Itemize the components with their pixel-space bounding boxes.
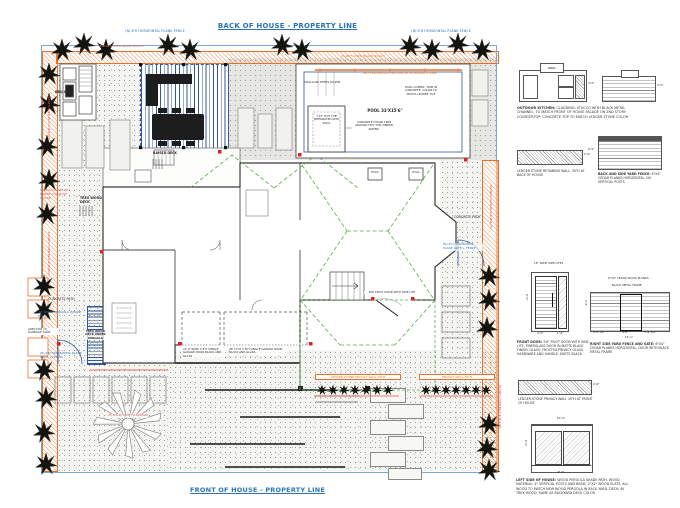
back-of-house-title: BACK OF HOUSE - PROPERTY LINE [205, 22, 370, 30]
top-fence-label-left: (N) 6'H HORIZONTAL PLANK FENCE [112, 29, 198, 33]
hot-tub-label: 7'X7' HOT TUB INTEGRATED INTO POOL [311, 115, 342, 125]
kitchen-side-elevation [602, 76, 656, 102]
pool-label: POOL 33'X15'6" [366, 108, 404, 113]
waterfall-label: 48"H WATERFALL FEATURE WITH LEDGER STONE [348, 72, 452, 76]
pergola-panel-2 [563, 431, 590, 465]
garbage-area-label: AREA FOR (3) GARBAGE CANS [28, 328, 58, 335]
plants-label-top-left: PLANTS OVER BLACK MULCH [100, 45, 162, 49]
front-door-detail [531, 272, 569, 332]
back-fence-dim: 6'-0" [588, 148, 595, 151]
plants-label-left-2: PLANTS OVER BLACK MULCH [46, 232, 50, 275]
bbq-area-label: BBQ AREA [55, 90, 83, 94]
garage-door-b-label: (B) 17'W X 8'H SINGLE GARAGE DOOR BLACK … [229, 348, 287, 355]
gate-right-label: (N) 6'H HORIZONTAL PLANK GATE + FENCE [443, 243, 483, 251]
top-fence-label-right: (N) 6'H HORIZONTAL PLANK FENCE [398, 29, 484, 33]
garage-door-a-label: (A) 8' WIDE X 8'H SINGLE GARAGE DOOR BLA… [183, 348, 225, 358]
front-door-note: 18" WIDE SIDE LITES [534, 262, 576, 265]
kitchen-end-panel [575, 75, 585, 99]
front-door-dim-height: 8'-0" [525, 294, 528, 301]
privacy-wall-dim: 2'-6" [593, 383, 600, 386]
plants-label-left-1: PLANTS OVER BLACK MULCH [46, 95, 50, 138]
pergola-dim-bottom: 8'-0" [544, 471, 578, 474]
privacy-wall-label-right: PRIVACY WALL 30"H [419, 374, 495, 380]
kitchen-side-bump [621, 70, 639, 78]
gate-dim-left: 6'-6" [584, 300, 587, 307]
kitchen-cabinet [523, 75, 538, 99]
gate-dim-b2: 4'-0" [622, 331, 629, 334]
hvac-label-1: HVAC [368, 171, 382, 174]
hot-tub-trim-note: CONCRETE COLOR TRIM AROUND HOT TUB (UNDE… [352, 121, 396, 131]
back-fence-detail [598, 136, 662, 170]
gate-door [620, 294, 642, 331]
fence-top-band [599, 137, 661, 141]
pool-coping-note: POOL COPING: TRIM IN CONCRETE, COLOR TO … [404, 86, 438, 96]
site-plan-sheet: BACK OF HOUSE - PROPERTY LINE FRONT OF H… [0, 0, 680, 508]
side-gate-detail [590, 292, 670, 332]
door-side-lite [558, 276, 567, 329]
front-door-dim-w1: 4'-0" [537, 332, 544, 335]
privacy-wall-label-left: LEDGER STONE PRIVACY WALL 30"H [315, 374, 401, 380]
front-door-dim-w2: 1'-6" [557, 332, 564, 335]
retaining-wall-caption: LEDGER STONE RETAINING WALL, 30"H AT BAC… [517, 169, 585, 177]
gate-note-planks: 6"X4" CEDAR WOOD PLANKS [608, 277, 664, 280]
front-door-caption: FRONT DOOR: 3'6" PIVOT DOOR WITH SIDE-LI… [517, 340, 595, 357]
pergola-dim-left: 8'-0" [524, 440, 527, 447]
shallow-steps-label: SHALLOW STEPS DOWN [300, 81, 344, 85]
plants-label-right-1: PLANTS OVER BLACK MULCH [488, 185, 492, 228]
side-gate-caption: RIGHT SIDE YARD FENCE AND GATE: 6"X4" CE… [590, 342, 670, 354]
stucco-posts-note: STUCCO POSTS TO MATCH COLOR OF HOUSE [40, 189, 77, 200]
plants-label-top-mid: PLANTS OVER BLACK MULCH [328, 55, 398, 59]
pergola-note: (N) WOOD PERGOLA (SHADE PATH) [38, 311, 82, 319]
plants-label-right-2: PLANTS OVER BLACK MULCH [497, 385, 501, 428]
kitchen-side-dim: 3'-0" [657, 84, 664, 87]
palm-tree-label: (E) PALM TREE TO REMAIN [108, 414, 148, 418]
kitchen-caption: OUTDOOR KITCHEN: CLADDING: STUCCO WITH B… [517, 106, 631, 119]
pergola-caption: LEFT SIDE OF HOUSE: WOOD PERGOLA SHADE P… [516, 478, 632, 495]
trex-deck-label: TREX WOOD DECK [80, 196, 110, 204]
door-handle [552, 293, 553, 307]
kitchen-drawer-2 [558, 87, 574, 99]
pergola-deck-label: TREX WOOD DECK UNDER PERGOLA [84, 330, 107, 340]
kitchen-drawer-1 [558, 75, 574, 87]
privacy-wall-caption: LEDGER STONE PRIVACY WALL 30"H AT FRONT … [518, 397, 594, 405]
gate-dim-total: 15'-1" [614, 336, 644, 339]
kitchen-front-dim: 3'-0" [588, 82, 595, 85]
gate-dim-b1: 5'-6 1/2" [593, 331, 605, 334]
door-panel [535, 276, 557, 329]
kitchen-front-elevation: GRILL [519, 70, 587, 102]
privacy-wall-detail [518, 380, 592, 395]
pergola-dim-top: 10'-0" [542, 417, 580, 420]
raised-deck-label: RAISED DECK [146, 151, 184, 155]
gate-note-frame: BLACK METAL FRAME [612, 284, 658, 287]
concrete-path-label-right: CONCRETE PATH [448, 215, 486, 219]
gate-dim-b3: 5'-6 1/2" [644, 331, 656, 334]
kitchen-hood: GRILL [540, 63, 564, 73]
right-planter-row [442, 286, 470, 358]
pergola-panel-1 [535, 431, 562, 465]
gate-left-label: (N) 6'H HORIZONTAL PLANK GATE + FENCE [40, 352, 82, 360]
pergola-detail [531, 424, 593, 473]
retaining-wall-dim: 2'-6" [584, 153, 591, 156]
pivot-door-label: 8'W PIVOT DOOR WITH SIDE LITE [364, 291, 420, 294]
hvac-label-2: HVAC [409, 171, 423, 174]
front-of-house-title: FRONT OF HOUSE - PROPERTY LINE [175, 486, 340, 494]
retaining-wall-detail [517, 150, 583, 165]
deck-furniture [139, 63, 227, 149]
concrete-path-label-left: CONCRETE PATH [48, 297, 84, 301]
house-outline [103, 163, 456, 363]
front-planter-row [55, 377, 166, 403]
back-fence-caption: BACK AND SIDE YARD FENCE: 6"X4" CEDAR PL… [598, 172, 664, 184]
